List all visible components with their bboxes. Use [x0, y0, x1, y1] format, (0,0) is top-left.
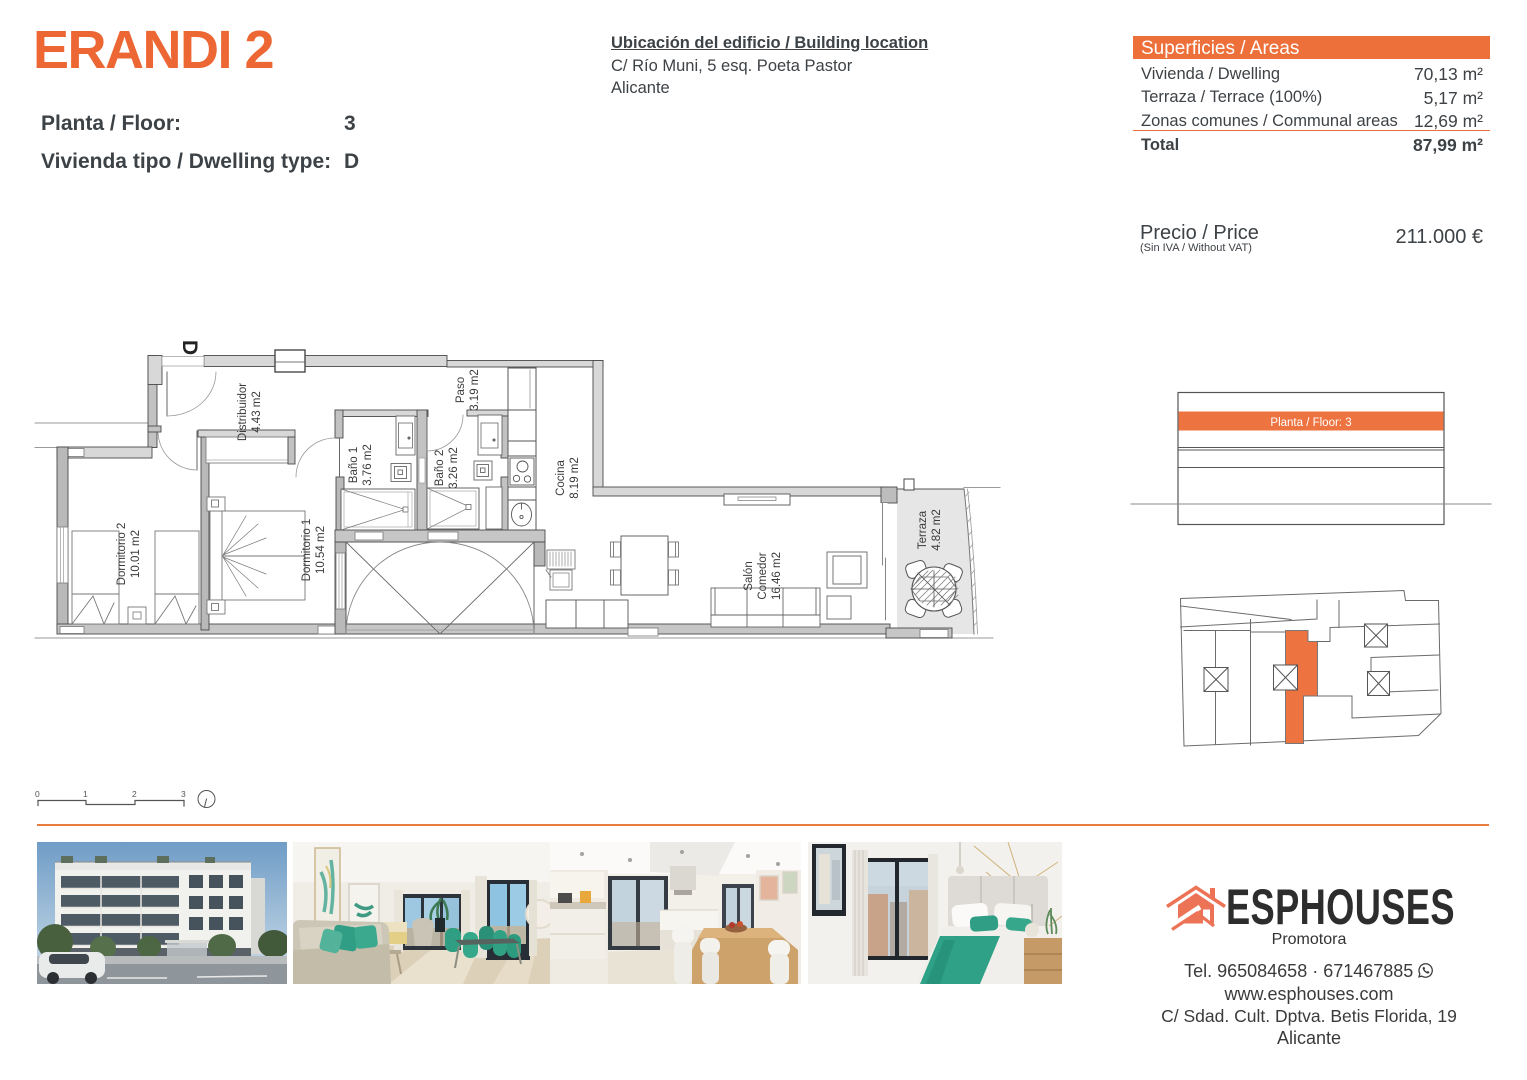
- svg-text:Baño 23.26 m2: Baño 23.26 m2: [434, 447, 460, 489]
- svg-text:2: 2: [132, 789, 137, 799]
- svg-text:Baño 13.76 m2: Baño 13.76 m2: [348, 444, 374, 486]
- svg-text:1: 1: [83, 789, 88, 799]
- svg-text:Cocina8.19 m2: Cocina8.19 m2: [555, 457, 581, 499]
- svg-text:3: 3: [181, 789, 186, 799]
- svg-text:0: 0: [35, 789, 40, 799]
- svg-text:Dormitorio 110.54 m2: Dormitorio 110.54 m2: [301, 519, 327, 582]
- svg-text:D: D: [178, 340, 201, 355]
- svg-text:Paso3.19 m2: Paso3.19 m2: [455, 369, 481, 411]
- svg-text:Dormitorio 210.01 m2: Dormitorio 210.01 m2: [116, 523, 142, 586]
- svg-text:Planta / Floor: 3: Planta / Floor: 3: [1270, 417, 1351, 429]
